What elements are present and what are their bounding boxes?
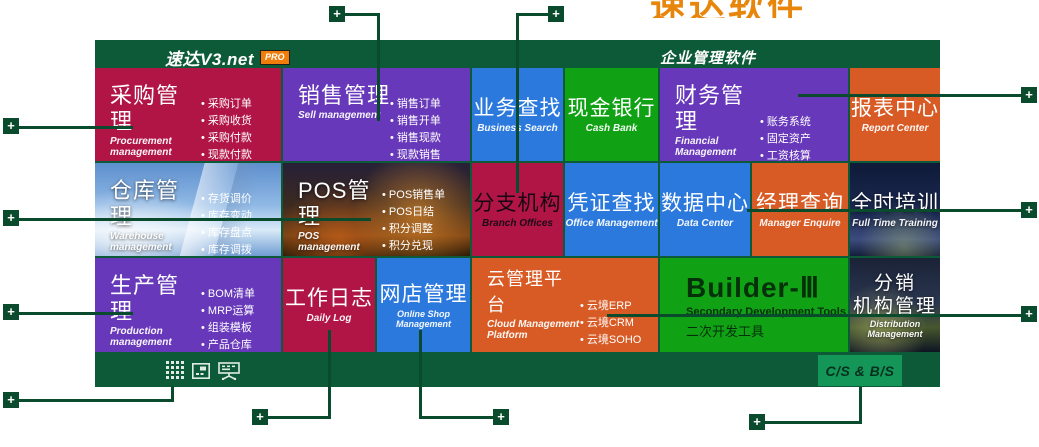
tile-financial[interactable]: 财务管理 Financial Management 账务系统 固定资产 工资核算	[660, 68, 848, 161]
bullet-item: 云境CRM	[580, 315, 658, 332]
tile-subtitle: Branch Offices	[482, 218, 553, 229]
tile-subtitle: Report Center	[862, 123, 929, 134]
tile-pos[interactable]: POS管理 POS management POS销售单 POS日结 积分调整 积…	[283, 163, 470, 256]
connector-line	[18, 312, 133, 315]
tile-title: 分支机构	[474, 191, 562, 217]
tile-bullet-list: 采购订单 采购收货 采购付款 现款付款	[201, 68, 281, 161]
tile-distribution[interactable]: 分销 机构管理 Distribution Management	[850, 258, 940, 352]
tile-title: 财务管理	[675, 83, 760, 135]
tile-subtitle: Distribution Management	[850, 319, 940, 339]
tile-voucher-search[interactable]: 凭证查找 Office Management	[565, 163, 658, 256]
tile-bullet-list: 存货调价 库存变动 库存盘点 库存调拨	[201, 163, 281, 256]
bullet-item: 现款付款	[201, 147, 281, 161]
bullet-item: 采购付款	[201, 130, 281, 147]
tile-subtitle: Cloud Management Platform	[487, 319, 580, 341]
bullet-item: 存货调价	[201, 191, 281, 208]
tile-bullet-list: 云境ERP 云境CRM 云境SOHO	[580, 258, 658, 352]
bullet-item: 积分调整	[382, 221, 470, 238]
connector-line	[18, 218, 371, 221]
pro-badge: PRO	[260, 50, 290, 65]
tile-bullet-list: 账务系统 固定资产 工资核算	[760, 68, 848, 161]
bullet-item: 销售订单	[390, 96, 470, 113]
tile-title: 现金银行	[568, 96, 656, 122]
bullet-item: 采购收货	[201, 113, 281, 130]
tile-title: 报表中心	[851, 96, 939, 122]
hotspot-plus-left-warehouse[interactable]	[3, 210, 19, 226]
bullet-item: 现款销售	[390, 147, 470, 161]
tile-subtitle: Full Time Training	[852, 218, 938, 229]
bullet-item: MRP运算	[201, 303, 281, 320]
tile-data-center[interactable]: 数据中心 Data Center	[660, 163, 750, 256]
tile-title: 网店管理	[380, 282, 468, 308]
tile-title: 工作日志	[285, 286, 373, 312]
tile-online-shop[interactable]: 网店管理 Online Shop Management	[377, 258, 470, 352]
logo-text: 速达V3.net	[165, 45, 254, 70]
bullet-item: 固定资产	[760, 131, 848, 148]
app-canvas: 速达软件 速达V3.net PRO 企业管理软件 采购管理 Procuremen…	[0, 0, 1039, 447]
tile-subtitle: Office Management	[565, 218, 657, 229]
hotspot-plus-right-data-center[interactable]	[1021, 202, 1037, 218]
tile-subtitle: Online Shop Management	[377, 309, 470, 329]
tile-warehouse[interactable]: 仓库管理 Warehouse management 存货调价 库存变动 库存盘点…	[95, 163, 281, 256]
connector-line	[171, 386, 174, 402]
tile-subtitle-cn: 二次开发工具	[686, 321, 848, 340]
tile-subtitle: Production management	[110, 326, 201, 348]
tile-title: 全时培训	[851, 191, 939, 217]
hotspot-plus-bottom-daily-log[interactable]	[252, 409, 268, 425]
bullet-item: 账务系统	[760, 114, 848, 131]
bullet-item: BOM清单	[201, 286, 281, 303]
tile-procurement[interactable]: 采购管理 Procurement management 采购订单 采购收货 采购…	[95, 68, 281, 161]
tile-title: POS管理	[298, 178, 382, 230]
tile-subtitle: Data Center	[677, 218, 733, 229]
tile-title: Builder-Ⅲ	[686, 271, 848, 304]
report-window-icon[interactable]	[192, 363, 210, 384]
hotspot-plus-right-cloud[interactable]	[1021, 306, 1037, 322]
connector-line	[18, 399, 174, 402]
connector-line	[18, 126, 133, 129]
connector-line	[516, 13, 548, 16]
header-logo: 速达V3.net PRO	[165, 45, 290, 70]
tile-bullet-list: POS销售单 POS日结 积分调整 积分兑现	[382, 163, 470, 256]
tile-title: 凭证查找	[568, 191, 656, 217]
cs-bs-label: C/S & B/S	[825, 363, 894, 379]
bullet-item: 销售现款	[390, 130, 470, 147]
tile-builder[interactable]: Builder-Ⅲ Secondary Development Tools 二次…	[660, 258, 848, 352]
connector-line	[747, 209, 1021, 212]
bullet-item: 销售开单	[390, 113, 470, 130]
tile-subtitle: Cash Bank	[586, 123, 638, 134]
bullet-item: 积分兑现	[382, 238, 470, 255]
tile-subtitle: POS management	[298, 231, 382, 253]
bullet-item: POS销售单	[382, 187, 470, 204]
tile-subtitle: Manager Enquire	[759, 218, 840, 229]
top-banner-text: 速达软件	[650, 0, 830, 18]
bullet-item: 采购订单	[201, 96, 281, 113]
tile-subtitle: Daily Log	[306, 313, 351, 324]
connector-line	[798, 94, 1021, 97]
bullet-item: 库存盘点	[201, 225, 281, 242]
tile-bullet-list: BOM清单 MRP运算 组装模板 产品仓库	[201, 258, 281, 352]
hotspot-plus-bottom-csbs[interactable]	[749, 414, 765, 430]
tile-bullet-list: 销售订单 销售开单 销售现款 现款销售	[390, 68, 470, 161]
tile-subtitle: Financial Management	[675, 136, 760, 158]
tile-title: 仓库管理	[110, 178, 201, 230]
connector-line	[419, 416, 495, 419]
top-banner-clipped: 速达软件	[650, 0, 830, 18]
bullet-item: 工资核算	[760, 148, 848, 161]
bullet-item: 云境ERP	[580, 298, 658, 315]
tile-cloud-platform[interactable]: 云管理平台 Cloud Management Platform 云境ERP 云境…	[472, 258, 658, 352]
tile-title: 数据中心	[661, 191, 749, 217]
tile-title: 生产管理	[110, 273, 201, 325]
bullet-item: 库存调拨	[201, 242, 281, 256]
network-monitor-icon[interactable]	[218, 362, 240, 385]
connector-line	[765, 421, 862, 424]
connector-line	[377, 13, 380, 121]
bullet-item: 云境SOHO	[580, 332, 658, 349]
connector-line	[419, 330, 422, 419]
connector-line	[328, 330, 331, 419]
product-title: 企业管理软件	[660, 47, 790, 68]
hotspot-plus-left-production[interactable]	[3, 304, 19, 320]
bullet-item: 产品仓库	[201, 337, 281, 352]
cs-bs-badge[interactable]: C/S & B/S	[818, 355, 902, 386]
tile-title: 经理查询	[756, 191, 844, 217]
tile-subtitle: Procurement management	[110, 136, 201, 158]
hotspot-plus-left-procurement[interactable]	[3, 118, 19, 134]
hotspot-plus-bottom-icons[interactable]	[3, 392, 19, 408]
bullet-item: 组装模板	[201, 320, 281, 337]
tile-subtitle: Warehouse management	[110, 231, 201, 253]
hotspot-plus-top-branch[interactable]	[548, 6, 564, 22]
bullet-item: 库存变动	[201, 208, 281, 225]
tile-cash-bank[interactable]: 现金银行 Cash Bank	[565, 68, 658, 161]
bullet-item: POS日结	[382, 204, 470, 221]
connector-line	[859, 387, 862, 424]
tile-report-center[interactable]: 报表中心 Report Center	[850, 68, 940, 161]
apps-grid-icon[interactable]	[166, 361, 184, 386]
hotspot-plus-bottom-online-shop[interactable]	[493, 409, 509, 425]
connector-line	[607, 314, 1021, 317]
tile-title: 云管理平台	[487, 266, 580, 318]
connector-line	[516, 13, 519, 193]
hotspot-plus-top-sell[interactable]	[329, 6, 345, 22]
hotspot-plus-right-financial[interactable]	[1021, 87, 1037, 103]
tile-production[interactable]: 生产管理 Production management BOM清单 MRP运算 组…	[95, 258, 281, 352]
tile-title-line1: 分销	[874, 272, 916, 295]
connector-line	[345, 13, 380, 16]
connector-line	[268, 416, 331, 419]
